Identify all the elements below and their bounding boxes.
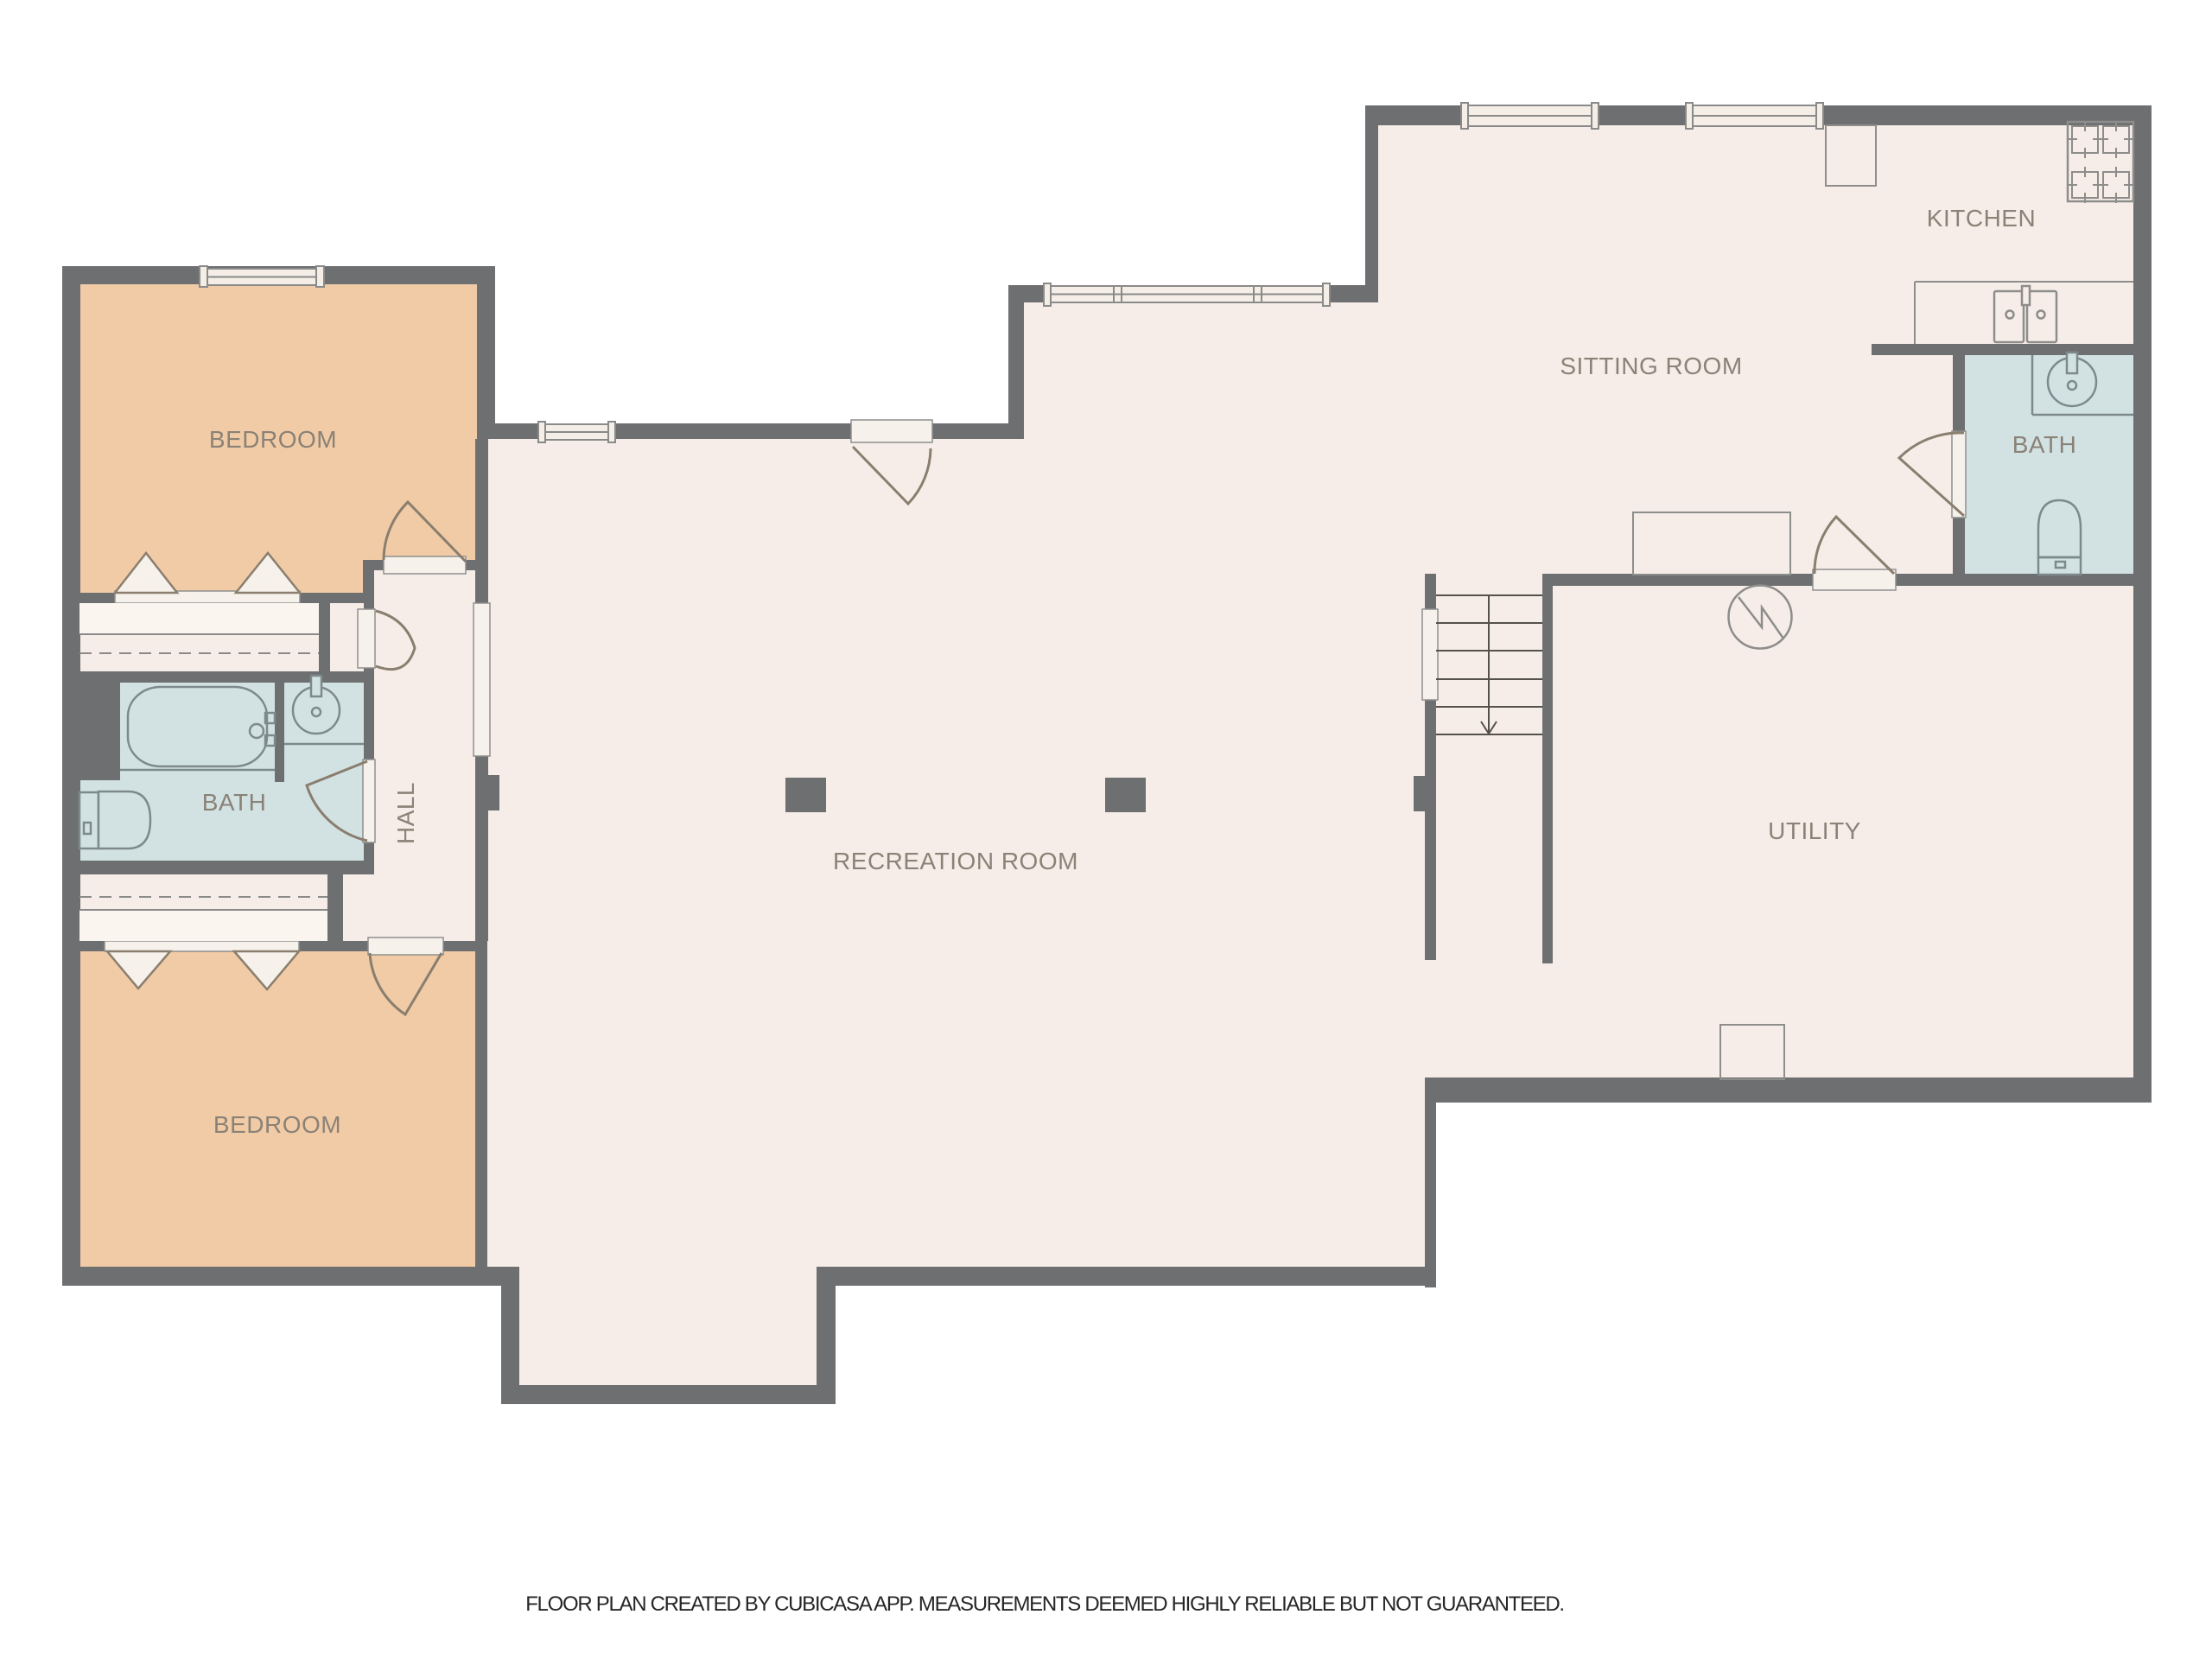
svg-text:BEDROOM: BEDROOM <box>209 426 337 453</box>
svg-text:BATH: BATH <box>2012 431 2077 458</box>
svg-text:HALL: HALL <box>392 782 419 844</box>
svg-text:RECREATION ROOM: RECREATION ROOM <box>833 848 1078 874</box>
svg-text:BATH: BATH <box>202 789 267 816</box>
svg-text:KITCHEN: KITCHEN <box>1927 205 2036 232</box>
svg-text:FLOOR PLAN CREATED BY CUBICASA: FLOOR PLAN CREATED BY CUBICASA APP. MEAS… <box>525 1592 1564 1616</box>
svg-text:BEDROOM: BEDROOM <box>213 1111 341 1138</box>
svg-text:UTILITY: UTILITY <box>1768 817 1861 844</box>
svg-text:SITTING ROOM: SITTING ROOM <box>1560 353 1742 379</box>
